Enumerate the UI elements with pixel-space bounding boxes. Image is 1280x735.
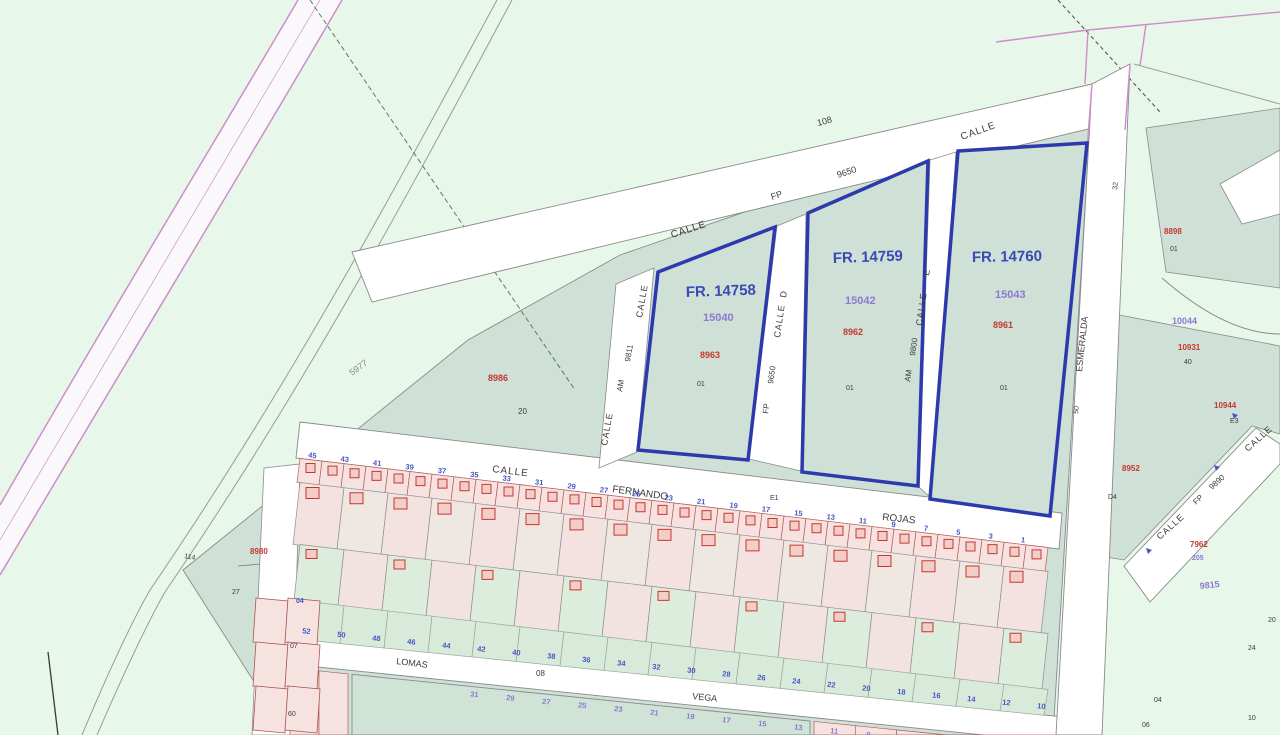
building-footprint [306, 487, 319, 498]
label-e3: E3 [1230, 418, 1239, 425]
label-60: 60 [288, 711, 296, 718]
building-footprint [614, 500, 623, 509]
housing-lot [956, 679, 1004, 711]
lot-number-row-c: 9 [866, 730, 871, 735]
building-footprint [548, 492, 557, 501]
parcel-fr-14760-title: FR. 14760 [972, 248, 1042, 266]
lot-number-row-b: 26 [757, 673, 766, 683]
label-d4: D4 [1108, 494, 1117, 501]
grid-label-10: 10 [1248, 715, 1256, 722]
building-footprint [658, 505, 667, 514]
lot-number-row-b: 46 [407, 637, 416, 647]
building-footprint [416, 477, 425, 486]
lot-number-row-c: 13 [794, 722, 803, 732]
lot-number-row-c: 25 [578, 700, 587, 710]
housing-lot [736, 653, 784, 689]
label-40: 40 [1184, 359, 1192, 366]
parcel-fr-14758-lot: 01 [697, 381, 705, 388]
label-27: 27 [232, 589, 240, 596]
building-footprint [680, 508, 689, 517]
building-footprint [350, 493, 363, 504]
lot-number-row-b: 36 [582, 655, 591, 665]
housing-lot [516, 627, 564, 666]
building-footprint [1010, 633, 1021, 642]
building-footprint [746, 540, 759, 551]
parcel-fr-14760-lot: 01 [1000, 385, 1008, 392]
building-footprint [504, 487, 513, 496]
label-10044: 10044 [1172, 316, 1197, 326]
parcel-fr-14759 [802, 161, 928, 486]
lot-number-row-a: 11 [859, 516, 868, 526]
building-footprint [394, 498, 407, 509]
building-footprint [856, 529, 865, 538]
housing-lot [253, 598, 288, 645]
building-footprint [570, 519, 583, 530]
building-footprint [306, 463, 315, 472]
lot-number-row-b: 40 [512, 648, 521, 658]
lot-number-row-a: 33 [502, 474, 511, 484]
parcel-fr-14760-code-purple: 15043 [995, 289, 1026, 301]
housing-lot [428, 616, 476, 657]
housing-lot [514, 571, 564, 632]
label-10931: 10931 [1178, 343, 1201, 352]
building-footprint [922, 561, 935, 572]
building-footprint [592, 498, 601, 507]
lot-number-row-b: 52 [302, 626, 311, 636]
street-e-label-am: AM [903, 369, 914, 382]
cluster-label-04: 04 [296, 598, 304, 605]
building-footprint [328, 466, 337, 475]
lot-number-row-b: 28 [722, 669, 731, 679]
housing-lot [780, 658, 828, 693]
housing-lot [954, 623, 1004, 684]
lot-number-row-b: 50 [337, 630, 346, 640]
building-footprint [482, 484, 491, 493]
lot-number-row-c: 19 [686, 711, 695, 721]
housing-lot [734, 597, 784, 658]
building-footprint [878, 532, 887, 541]
building-footprint [922, 537, 931, 546]
parcel-fr-14758-title: FR. 14758 [686, 282, 757, 301]
housing-lot [253, 642, 288, 689]
label-08: 08 [536, 669, 545, 678]
housing-lot [470, 565, 520, 626]
building-footprint [526, 514, 539, 525]
building-footprint [570, 495, 579, 504]
parcel-fr-14760-code-red: 8961 [993, 320, 1013, 330]
lot-number-row-b: 32 [652, 662, 661, 672]
lot-number-row-c: 23 [614, 704, 623, 714]
lot-number-row-c: 15 [758, 719, 767, 729]
housing-lot [384, 611, 432, 653]
building-footprint [812, 524, 821, 533]
building-footprint [636, 503, 645, 512]
building-footprint [834, 550, 847, 561]
lot-number-row-b: 42 [477, 644, 486, 654]
housing-lot [340, 606, 388, 648]
lot-number-row-c: 17 [722, 715, 731, 725]
lot-number-row-b: 12 [1002, 698, 1011, 708]
building-footprint [988, 545, 997, 554]
lot-number-row-b: 48 [372, 633, 381, 643]
building-footprint [1010, 547, 1019, 556]
housing-lot [253, 686, 288, 733]
building-footprint [702, 535, 715, 546]
label-205: 205 [1192, 555, 1204, 562]
housing-lot [382, 555, 432, 616]
lot-number-row-a: 13 [826, 512, 835, 522]
lot-number-row-a: 41 [373, 458, 382, 468]
building-footprint [306, 549, 317, 558]
housing-lot [690, 592, 740, 653]
parcel-fr-14759-lot: 01 [846, 385, 854, 392]
lot-number-row-b: 30 [687, 666, 696, 676]
building-footprint [460, 482, 469, 491]
label-07: 07 [290, 643, 298, 650]
lot-number-row-c: 29 [506, 693, 515, 703]
building-footprint [658, 529, 671, 540]
label-8980: 8980 [250, 547, 268, 556]
lot-number-row-b: 18 [897, 687, 906, 697]
lot-number-row-a: 25 [632, 489, 641, 499]
parcel-fr-14758-code-purple: 15040 [703, 312, 734, 324]
street-esmeralda-32: 32 [1112, 182, 1120, 191]
building-footprint [900, 534, 909, 543]
lot-number-row-a: 17 [761, 504, 770, 514]
housing-lot [998, 628, 1048, 689]
building-footprint [482, 508, 495, 519]
grid-label-24: 24 [1248, 645, 1256, 652]
lot-number-row-b: 20 [862, 683, 871, 693]
housing-lot [602, 581, 652, 642]
building-footprint [790, 545, 803, 556]
housing-lot [692, 648, 740, 684]
lot-number-row-b: 38 [547, 651, 556, 661]
building-footprint [438, 503, 451, 514]
lot-number-row-c: 21 [650, 708, 659, 718]
building-footprint [350, 469, 359, 478]
housing-lot [285, 598, 320, 645]
lot-number-row-a: 45 [308, 450, 317, 460]
label-01-right: 01 [1170, 246, 1178, 253]
lot-number-row-a: 35 [470, 470, 479, 480]
lot-number-row-a: 21 [697, 497, 706, 507]
grid-label-20: 20 [1268, 617, 1276, 624]
parcel-fr-14759-title: FR. 14759 [833, 248, 904, 267]
housing-lot [558, 576, 608, 637]
lot-number-row-b: 16 [932, 691, 941, 701]
housing-lot [294, 544, 344, 605]
lot-number-row-c: 11 [830, 726, 839, 735]
building-footprint [768, 518, 777, 527]
housing-lot [604, 637, 652, 675]
building-footprint [394, 560, 405, 569]
building-footprint [834, 612, 845, 621]
building-footprint [878, 556, 891, 567]
housing-lot [778, 602, 828, 663]
building-footprint [702, 511, 711, 520]
building-footprint [834, 526, 843, 535]
building-footprint [790, 521, 799, 530]
building-footprint [966, 566, 979, 577]
housing-lot [426, 560, 476, 621]
building-footprint [614, 524, 627, 535]
parcel-fr-14759-code-purple: 15042 [845, 295, 876, 307]
cadastral-map: FR. 1475815040896301FR. 1475915042896201… [0, 0, 1280, 735]
housing-lot [866, 613, 916, 674]
housing-lot [868, 669, 916, 702]
street-d-label-fp: FP [761, 403, 771, 414]
building-footprint [1032, 550, 1041, 559]
building-footprint [746, 602, 757, 611]
building-footprint [394, 474, 403, 483]
housing-lot [910, 618, 960, 679]
lot-number-row-a: 19 [729, 501, 738, 511]
label-e1: E1 [770, 495, 779, 502]
label-9815: 9815 [1199, 579, 1220, 591]
lot-number-row-a: 39 [405, 462, 414, 472]
building-footprint [372, 471, 381, 480]
lot-number-row-a: 31 [535, 477, 544, 487]
label-8986: 8986 [488, 373, 508, 383]
lot-number-row-b: 22 [827, 680, 836, 690]
building-footprint [526, 490, 535, 499]
housing-lot [319, 671, 348, 735]
housing-lot [560, 632, 608, 671]
grid-label-06: 06 [1142, 722, 1150, 729]
label-20-left: 20 [518, 407, 527, 416]
housing-lot [285, 686, 320, 733]
housing-lot [646, 586, 696, 647]
parcel-fr-14758-code-red: 8963 [700, 350, 720, 360]
label-7962: 7962 [1190, 540, 1208, 549]
label-8898: 8898 [1164, 227, 1182, 236]
lot-number-row-a: 43 [340, 454, 349, 464]
housing-lot [338, 550, 388, 611]
lot-number-row-a: 27 [599, 485, 608, 495]
lot-number-row-a: 29 [567, 481, 576, 491]
building-footprint [746, 516, 755, 525]
building-footprint [966, 542, 975, 551]
housing-lot [822, 607, 872, 668]
building-footprint [570, 581, 581, 590]
grid-label-04: 04 [1154, 697, 1162, 704]
building-footprint [438, 479, 447, 488]
lot-number-row-a: 23 [664, 493, 673, 503]
building-footprint [724, 513, 733, 522]
building-footprint [658, 591, 669, 600]
building-footprint [482, 570, 493, 579]
lot-number-row-c: 27 [542, 697, 551, 707]
building-footprint [922, 623, 933, 632]
lot-number-row-a: 37 [437, 466, 446, 476]
lot-number-row-a: 15 [794, 508, 803, 518]
label-8952: 8952 [1122, 464, 1140, 473]
map-viewport: FR. 1475815040896301FR. 1475915042896201… [0, 0, 1280, 735]
parcel-fr-14759-code-red: 8962 [843, 327, 863, 337]
street-esmeralda-50: 50 [1073, 406, 1081, 415]
lot-number-row-c: 31 [470, 689, 479, 699]
lot-number-row-b: 10 [1037, 701, 1046, 711]
label-10944: 10944 [1214, 401, 1237, 410]
building-footprint [944, 539, 953, 548]
building-footprint [1010, 571, 1023, 582]
